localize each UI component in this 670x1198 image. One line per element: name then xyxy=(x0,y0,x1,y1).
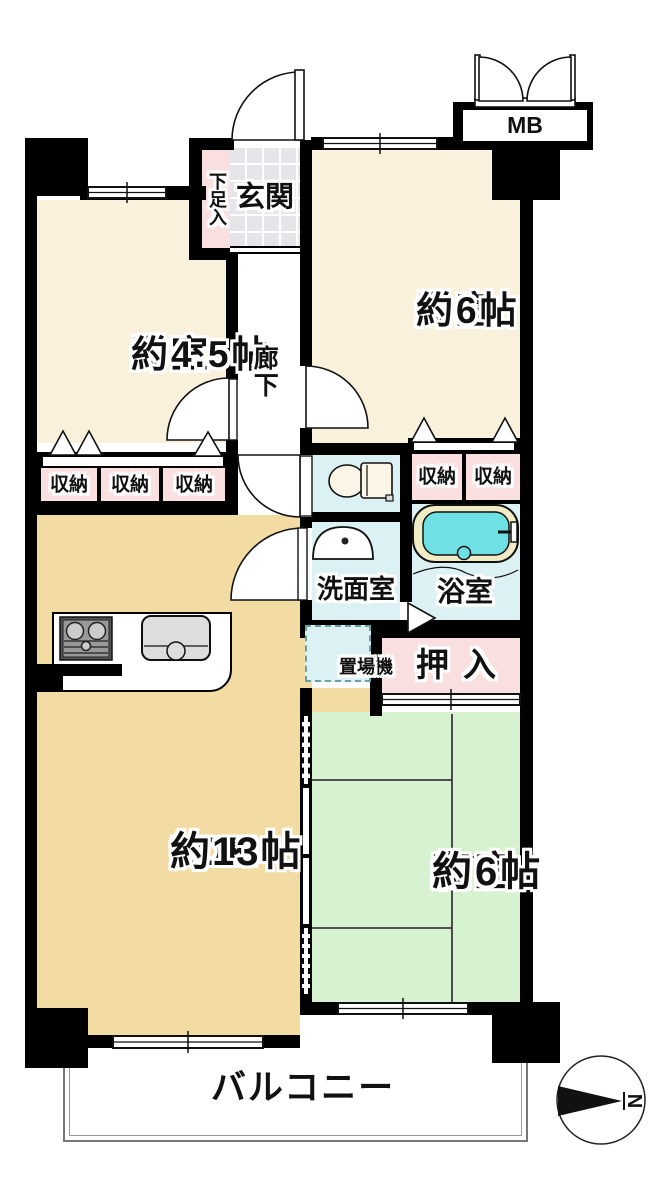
meter-box: MB xyxy=(463,110,587,141)
closet-track-left xyxy=(41,455,225,468)
entrance-step xyxy=(230,246,300,254)
entrance-label: 玄関 xyxy=(236,180,294,215)
pillar-bottom-right xyxy=(492,1002,560,1063)
floor-plan: MB xyxy=(0,0,670,1198)
sliding-door-rail xyxy=(302,928,310,994)
wall-segment xyxy=(300,600,312,620)
storage-label: 収納 xyxy=(474,465,512,488)
washroom-label: 洗面室 xyxy=(317,574,395,606)
room-size: 約6帖 xyxy=(432,848,543,897)
hallway-label: 廊下 xyxy=(249,345,280,399)
wall-segment xyxy=(300,252,312,366)
laundry-line2: 置場 xyxy=(339,657,375,678)
meter-box-doors xyxy=(475,55,575,107)
pillar-top-right xyxy=(492,140,560,200)
room-washroom xyxy=(312,522,400,623)
balcony-label: バルコニー xyxy=(211,1068,395,1111)
wall-segment xyxy=(80,186,206,200)
ldk-notch xyxy=(312,688,374,714)
wall-segment xyxy=(300,517,312,528)
wall-segment xyxy=(300,140,312,252)
wall-segment xyxy=(312,443,400,455)
wall-segment xyxy=(400,443,412,602)
kitchen-counter xyxy=(52,612,232,692)
storage-label: 収納 xyxy=(418,465,456,488)
pillar-bottom-left xyxy=(25,1008,88,1068)
wall-segment xyxy=(189,138,202,258)
wall-segment xyxy=(25,502,238,515)
room-size: 約13帖 xyxy=(170,828,303,877)
wall-segment xyxy=(435,137,455,150)
meter-box-label: MB xyxy=(507,112,543,139)
kitchen-wall-stub xyxy=(37,664,122,676)
wall-segment xyxy=(25,138,37,1068)
entrance-door-arc xyxy=(232,70,304,140)
kitchen-wall-stub xyxy=(37,676,63,692)
closet-track-right xyxy=(412,441,516,452)
room-toilet xyxy=(312,455,400,512)
room-ldk xyxy=(37,515,300,1035)
pillar-top-left xyxy=(25,138,88,196)
wall-segment xyxy=(300,428,312,455)
storage-label: 収納 xyxy=(111,473,149,496)
shoe-cabinet-label: 下足入 xyxy=(205,172,227,226)
bathroom-label: 浴室 xyxy=(437,575,493,609)
wall-segment xyxy=(196,138,234,150)
futon-closet-label: 押入 xyxy=(402,645,510,685)
wall-segment xyxy=(312,512,400,522)
wall-segment xyxy=(311,137,325,150)
sliding-door-rail xyxy=(302,716,310,784)
compass-north-label: N xyxy=(623,1094,645,1108)
room-size: 約6帖 xyxy=(416,288,520,333)
compass-icon: N xyxy=(557,1056,645,1144)
storage-label: 収納 xyxy=(50,473,88,496)
storage-label: 収納 xyxy=(175,473,213,496)
